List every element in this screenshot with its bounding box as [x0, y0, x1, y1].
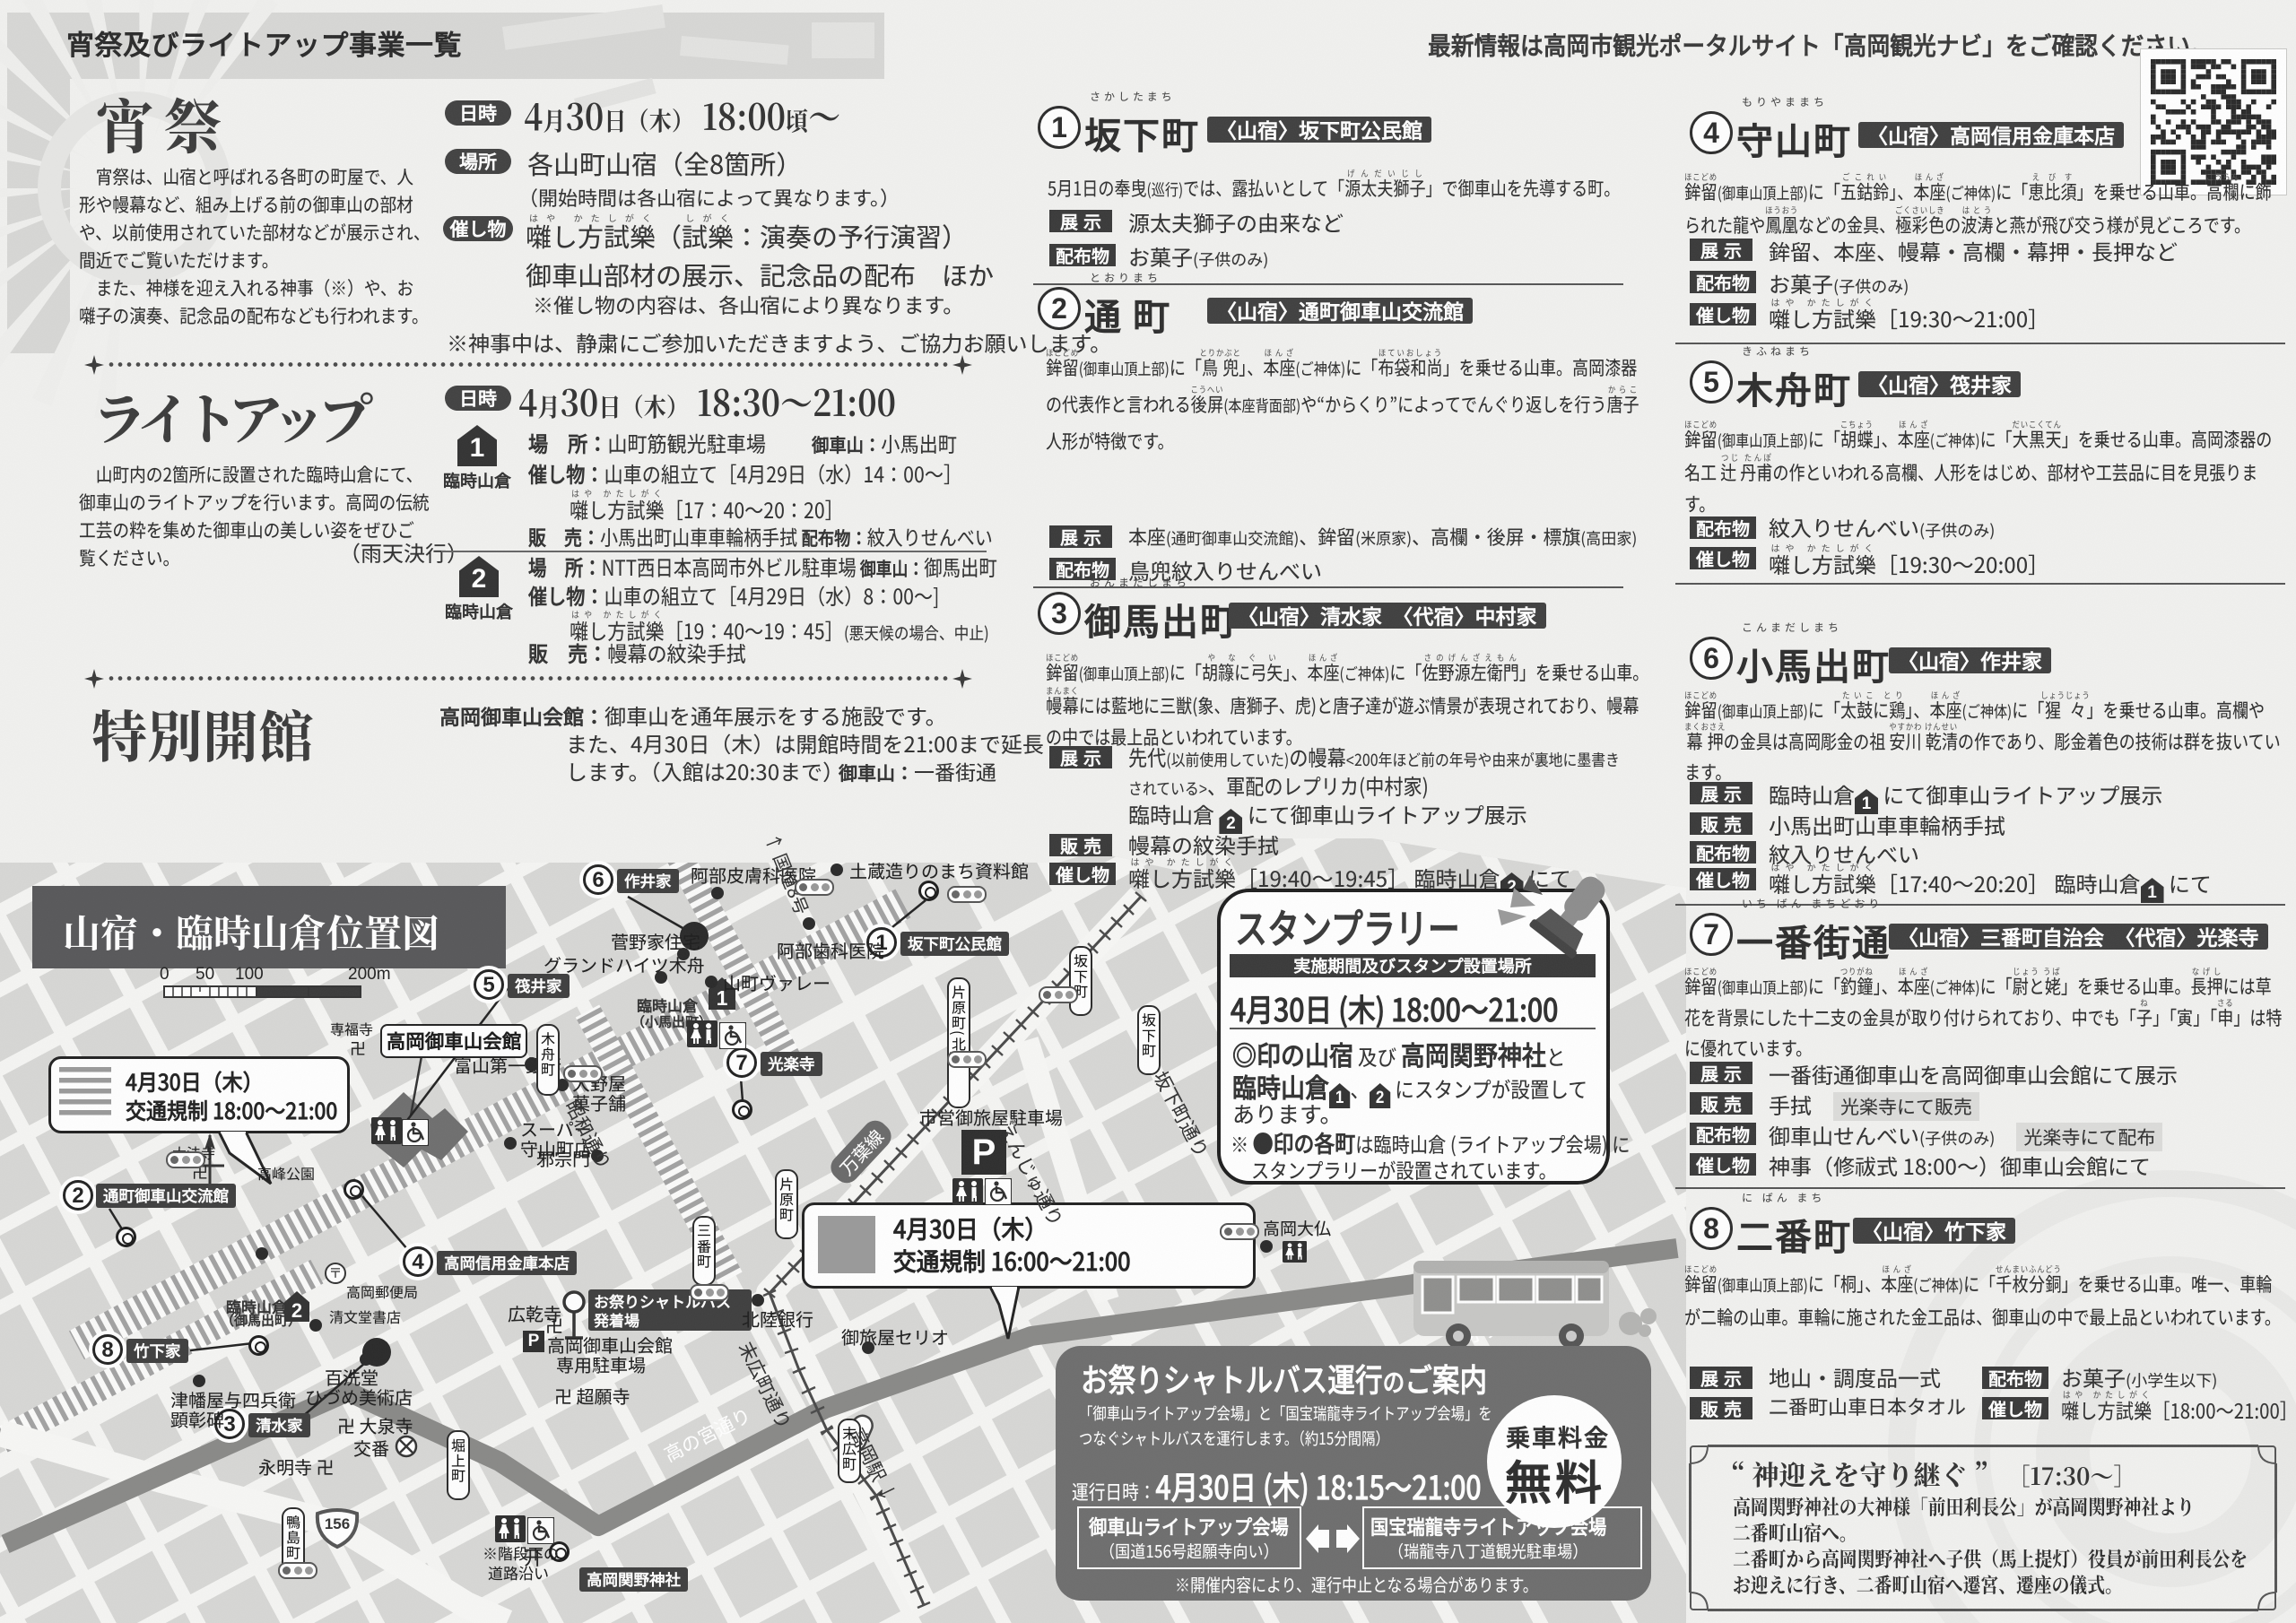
- svg-text:200m: 200m: [348, 965, 391, 984]
- svg-text:50: 50: [196, 965, 214, 984]
- svg-text:156: 156: [325, 1515, 350, 1532]
- svg-text:0: 0: [160, 965, 170, 984]
- svg-text:100: 100: [235, 965, 264, 984]
